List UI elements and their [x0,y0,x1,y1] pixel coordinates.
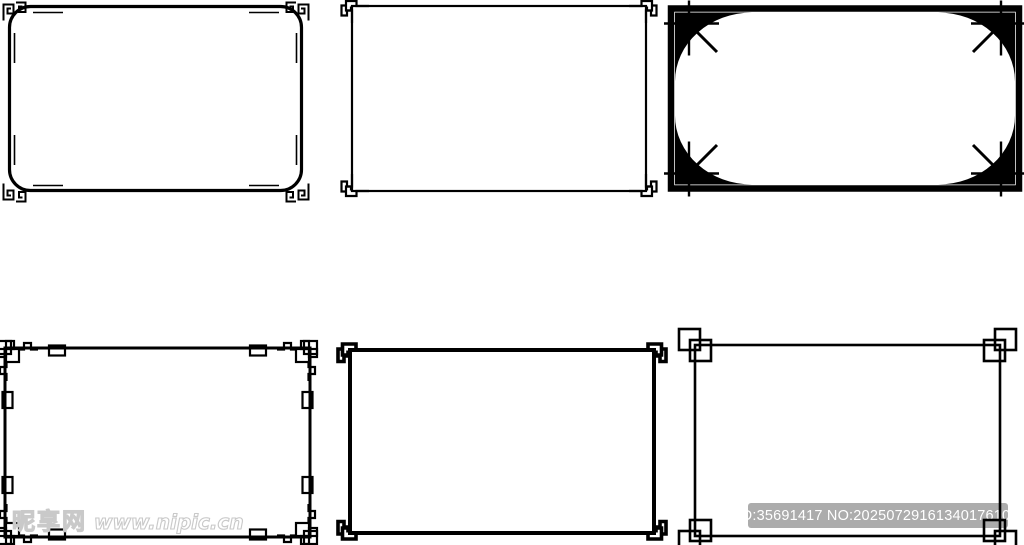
frame-hash-corners [678,327,1024,545]
corner-lattice [250,341,317,408]
frame-border [352,6,646,191]
corner-ornament [4,184,26,202]
accent-lines [15,13,297,186]
site-watermark-cn: 昵享网 [12,509,87,535]
frame-art-deco-oval [664,0,1024,196]
corner-ornament [338,344,370,370]
corner-ornament [634,513,666,539]
frame-border [350,350,654,533]
corner-lattice [250,477,317,544]
corner-ornament [342,174,370,196]
frames-clipart-preview: ID:35691417 NO:20250729161340176106 [0,0,1024,545]
frame-thin-meander [340,0,656,200]
frame-bold-meander [338,341,660,541]
corner-ornament [634,344,666,370]
corner-ornament [629,174,657,196]
frame-border [695,345,1000,536]
frame-rounded-greek-spiral [0,0,312,204]
corner-ornament [338,513,370,539]
corner-ornament [4,3,26,21]
corner-ornament [287,184,309,202]
site-watermark: 昵享网www.nipic.cn [12,502,244,536]
frame-border [10,7,302,191]
oval-corner-fill [675,13,1015,185]
corner-lattice [0,341,65,408]
frame-border [671,9,1019,189]
corner-ornament [629,1,657,23]
site-watermark-url: www.nipic.cn [94,510,244,534]
corner-ornament [342,1,370,23]
